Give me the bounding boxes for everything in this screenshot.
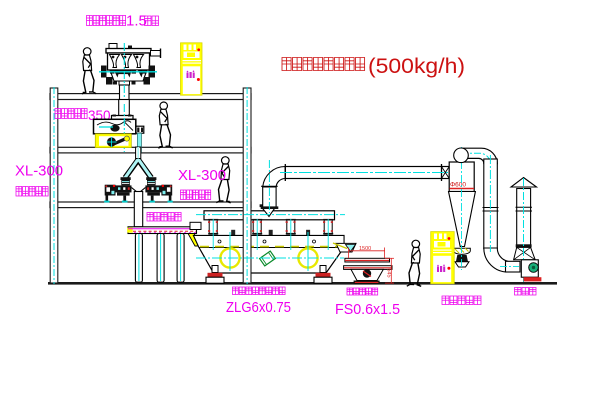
svg-text:1.5: 1.5 (126, 13, 147, 30)
svg-text:XL-300: XL-300 (15, 163, 63, 180)
svg-text:1500: 1500 (359, 246, 371, 252)
svg-text:Φ600: Φ600 (450, 182, 466, 189)
svg-text:FS0.6x1.5: FS0.6x1.5 (335, 301, 400, 318)
svg-text:(500kg/h): (500kg/h) (368, 54, 465, 78)
svg-text:545: 545 (386, 268, 392, 277)
svg-text:XL-300: XL-300 (178, 167, 226, 184)
svg-text:ZLG6x0.75: ZLG6x0.75 (226, 299, 291, 316)
